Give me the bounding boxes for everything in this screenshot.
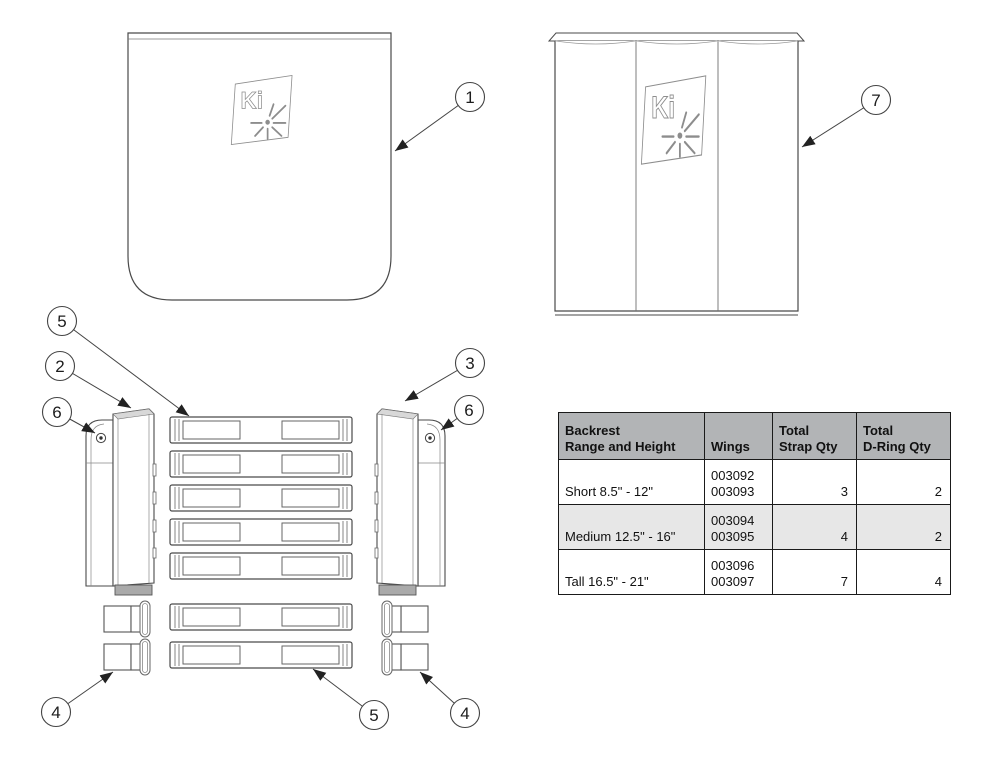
cell-dring-qty: 4 (857, 550, 951, 595)
cell-range: Tall 16.5" - 21" (559, 550, 705, 595)
callout-4-right: 4 (451, 699, 480, 728)
callout-number: 5 (369, 706, 378, 725)
callout-1: 1 (456, 83, 485, 112)
screw-right (425, 433, 434, 442)
cell-strap-qty: 4 (773, 505, 857, 550)
ki-logo (641, 76, 705, 164)
cell-strap-qty: 3 (773, 460, 857, 505)
callout-number: 2 (55, 357, 64, 376)
callout-7: 7 (862, 86, 891, 115)
table-row: Short 8.5" - 12" 003092 003093 3 2 (559, 460, 951, 505)
table-row: Medium 12.5" - 16" 003094 003095 4 2 (559, 505, 951, 550)
table-row: Tall 16.5" - 21" 003096 003097 7 4 (559, 550, 951, 595)
col-header-dring-qty: Total D-Ring Qty (857, 413, 951, 460)
cell-wings: 003092 003093 (705, 460, 773, 505)
screw-left (96, 433, 105, 442)
cell-dring-qty: 2 (857, 460, 951, 505)
callout-5-lower: 5 (360, 701, 389, 730)
wing-foot (115, 585, 152, 595)
wing-foot (379, 585, 416, 595)
spec-table: Backrest Range and Height Wings Total St… (558, 412, 951, 595)
ki-logo (231, 75, 292, 144)
callout-5-upper: 5 (48, 307, 77, 336)
backrest-shell-drawing (549, 33, 804, 315)
callout-6-left: 6 (43, 398, 72, 427)
callout-number: 1 (465, 88, 474, 107)
callout-4-left: 4 (42, 698, 71, 727)
left-wing-drawing (86, 409, 156, 595)
callout-number: 3 (465, 354, 474, 373)
right-wing-drawing (375, 409, 445, 595)
callout-number: 4 (51, 703, 60, 722)
cell-wings: 003094 003095 (705, 505, 773, 550)
col-header-strap-qty: Total Strap Qty (773, 413, 857, 460)
parts-diagram: Ki (0, 0, 1000, 766)
callout-3: 3 (456, 349, 485, 378)
callout-number: 7 (871, 91, 880, 110)
cell-range: Short 8.5" - 12" (559, 460, 705, 505)
callout-6-right: 6 (455, 396, 484, 425)
callout-number: 6 (464, 401, 473, 420)
callout-number: 6 (52, 403, 61, 422)
strap-stack-drawing (170, 417, 352, 668)
col-header-wings: Wings (705, 413, 773, 460)
table-header-row: Backrest Range and Height Wings Total St… (559, 413, 951, 460)
cell-wings: 003096 003097 (705, 550, 773, 595)
callout-2: 2 (46, 352, 75, 381)
cell-range: Medium 12.5" - 16" (559, 505, 705, 550)
parts-diagram-page: Ki (0, 0, 1000, 766)
callout-number: 4 (460, 704, 469, 723)
cell-strap-qty: 7 (773, 550, 857, 595)
col-header-range: Backrest Range and Height (559, 413, 705, 460)
cell-dring-qty: 2 (857, 505, 951, 550)
backrest-cover-drawing (128, 33, 391, 300)
callout-number: 5 (57, 312, 66, 331)
